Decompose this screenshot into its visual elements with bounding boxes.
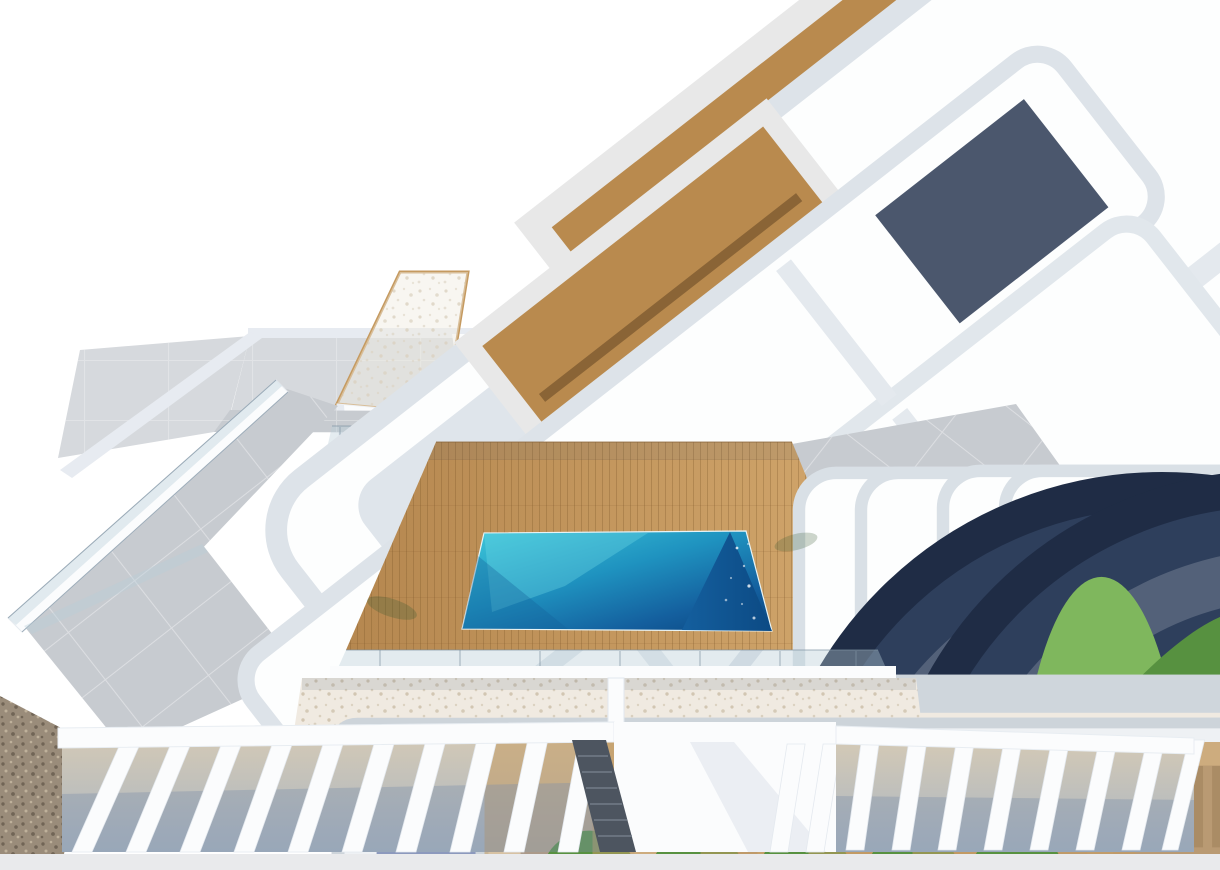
deck-shadow-band	[428, 442, 800, 460]
swimming-pool	[462, 531, 772, 631]
architectural-render	[0, 0, 1220, 870]
ground-strip	[0, 854, 1220, 870]
render-canvas	[0, 0, 1220, 870]
pergola-level	[58, 722, 1220, 870]
glass-balustrade-bottom	[338, 650, 886, 668]
